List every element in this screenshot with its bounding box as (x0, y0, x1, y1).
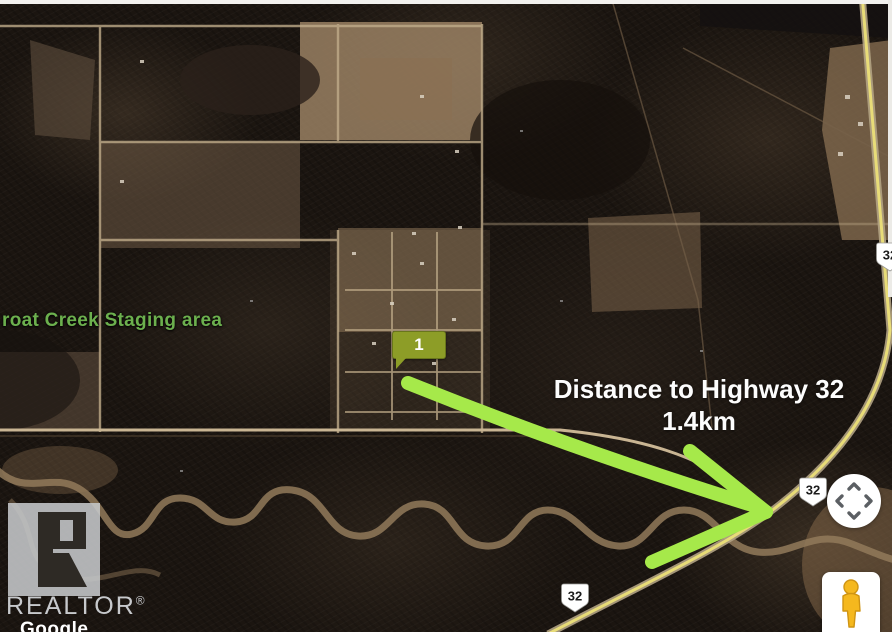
marker-tail (396, 357, 407, 369)
top-border-strip (0, 0, 892, 4)
highway-badge-text: 32 (568, 589, 582, 604)
map-pan-control[interactable] (827, 474, 881, 528)
distance-annotation: Distance to Highway 32 1.4km (549, 374, 849, 438)
google-watermark: Google (20, 619, 88, 632)
place-label-staging-area: roat Creek Staging area (2, 310, 222, 332)
highway-32-badge: 32 (799, 477, 827, 508)
distance-annotation-line1: Distance to Highway 32 (549, 374, 849, 404)
realtor-logo (8, 503, 100, 596)
distance-annotation-line2: 1.4km (549, 404, 849, 438)
highway-badge-text: 32 (883, 248, 892, 263)
realtor-r-icon (8, 503, 100, 596)
street-view-pegman-button[interactable] (822, 572, 880, 632)
highway-badge-text: 32 (806, 483, 820, 498)
marker-number: 1 (393, 332, 445, 357)
realtor-wordmark: REALTOR® (6, 592, 147, 621)
highway-32-badge-bottom: 32 (561, 583, 589, 614)
realtor-text: REALTOR (6, 592, 136, 620)
registered-symbol: ® (136, 594, 147, 608)
listing-marker-1[interactable]: 1 (392, 331, 446, 359)
highway-32-badge-edge-clipped: 32 (876, 242, 892, 273)
satellite-map[interactable]: roat Creek Staging area 1 Distance to Hi… (0, 0, 892, 632)
pan-arrows-icon (827, 474, 881, 528)
pegman-street-view-icon (834, 579, 868, 632)
